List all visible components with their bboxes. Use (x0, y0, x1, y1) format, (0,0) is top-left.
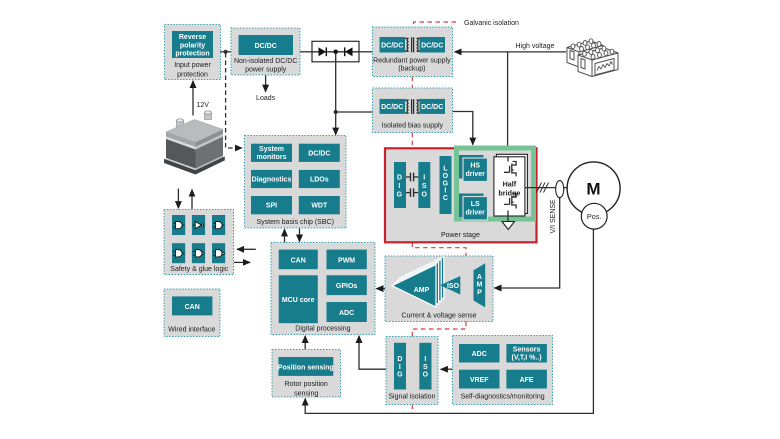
svg-text:Isolated bias supply: Isolated bias supply (382, 122, 444, 129)
svg-text:DC/DC: DC/DC (421, 104, 443, 111)
svg-text:P: P (477, 289, 482, 296)
svg-text:protection: protection (175, 51, 209, 58)
svg-text:AFE: AFE (520, 377, 534, 384)
svg-text:G: G (397, 191, 403, 198)
svg-text:O: O (423, 372, 429, 379)
svg-text:HS: HS (470, 162, 480, 169)
svg-text:sensing: sensing (294, 391, 318, 398)
svg-text:driver: driver (465, 171, 485, 178)
svg-text:polarity: polarity (180, 42, 205, 49)
svg-text:ADC: ADC (339, 310, 354, 317)
svg-text:ISO: ISO (447, 283, 460, 290)
svg-text:driver: driver (465, 209, 485, 216)
svg-text:Non-isolated DC/DC: Non-isolated DC/DC (234, 58, 297, 65)
svg-text:DC/DC: DC/DC (421, 42, 443, 49)
svg-text:G: G (397, 372, 403, 379)
svg-text:DC/DC: DC/DC (308, 150, 330, 157)
svg-text:V/I SENSE: V/I SENSE (550, 199, 557, 234)
svg-text:L: L (443, 166, 448, 173)
svg-text:12V: 12V (197, 102, 210, 109)
svg-text:bridge: bridge (498, 189, 520, 198)
svg-text:AMP: AMP (414, 287, 430, 294)
svg-text:LDOs: LDOs (310, 177, 329, 184)
svg-text:M: M (476, 282, 482, 289)
svg-text:High voltage: High voltage (516, 43, 555, 50)
svg-text:Self-diagnostics/monitoring: Self-diagnostics/monitoring (461, 394, 545, 401)
svg-text:SPI: SPI (266, 203, 277, 210)
svg-text:Pos.: Pos. (587, 212, 602, 221)
svg-text:G: G (443, 180, 449, 187)
svg-text:S: S (423, 364, 428, 371)
svg-text:LS: LS (471, 201, 480, 208)
svg-text:VREF: VREF (470, 377, 489, 384)
svg-text:Position sensing: Position sensing (278, 364, 334, 371)
svg-text:S: S (422, 183, 427, 190)
svg-text:Signal isolation: Signal isolation (388, 394, 435, 401)
svg-text:I: I (399, 364, 401, 371)
svg-text:I: I (398, 183, 400, 190)
svg-text:ADC: ADC (472, 351, 487, 358)
svg-text:GPIOs: GPIOs (336, 283, 358, 290)
svg-text:WDT: WDT (311, 203, 328, 210)
svg-text:Sensors: Sensors (513, 347, 541, 354)
svg-text:Reverse: Reverse (179, 34, 206, 41)
svg-text:PWM: PWM (338, 257, 355, 264)
svg-text:System: System (259, 146, 284, 153)
svg-text:A: A (477, 274, 482, 281)
svg-text:MCU core: MCU core (282, 297, 315, 304)
svg-text:I: I (423, 174, 425, 181)
svg-text:I: I (424, 356, 426, 363)
svg-text:Redundant power supply: Redundant power supply (373, 58, 451, 65)
svg-text:D: D (397, 356, 402, 363)
svg-text:(V,T,I %..): (V,T,I %..) (512, 354, 542, 361)
svg-text:System basis chip (SBC): System basis chip (SBC) (256, 219, 333, 226)
svg-text:O: O (421, 191, 427, 198)
svg-text:protection: protection (177, 72, 208, 79)
svg-text:Power stage: Power stage (441, 232, 480, 239)
svg-text:DC/DC: DC/DC (255, 43, 277, 50)
svg-text:I: I (444, 188, 446, 195)
svg-text:Loads: Loads (256, 95, 276, 102)
svg-text:M: M (586, 179, 600, 198)
svg-text:Safety & glue logic: Safety & glue logic (170, 266, 228, 273)
svg-text:Current & voltage sense: Current & voltage sense (401, 313, 476, 320)
svg-text:Rotor position: Rotor position (285, 381, 328, 388)
svg-text:power supply: power supply (245, 66, 287, 73)
svg-text:monitors: monitors (257, 154, 287, 161)
svg-text:Input power: Input power (174, 62, 211, 69)
svg-text:Half: Half (503, 180, 517, 189)
svg-text:CAN: CAN (291, 257, 306, 264)
svg-text:O: O (443, 173, 449, 180)
svg-text:C: C (443, 195, 448, 202)
svg-text:Digital processing: Digital processing (295, 326, 350, 333)
svg-text:Wired interface: Wired interface (168, 327, 215, 334)
svg-text:CAN: CAN (185, 304, 200, 311)
svg-text:Diagnostics: Diagnostics (252, 177, 292, 184)
svg-text:D: D (397, 174, 402, 181)
svg-text:(backup): (backup) (398, 66, 425, 73)
svg-text:DC/DC: DC/DC (381, 104, 403, 111)
svg-text:Galvanic isolation: Galvanic isolation (464, 20, 519, 27)
svg-text:DC/DC: DC/DC (381, 42, 403, 49)
